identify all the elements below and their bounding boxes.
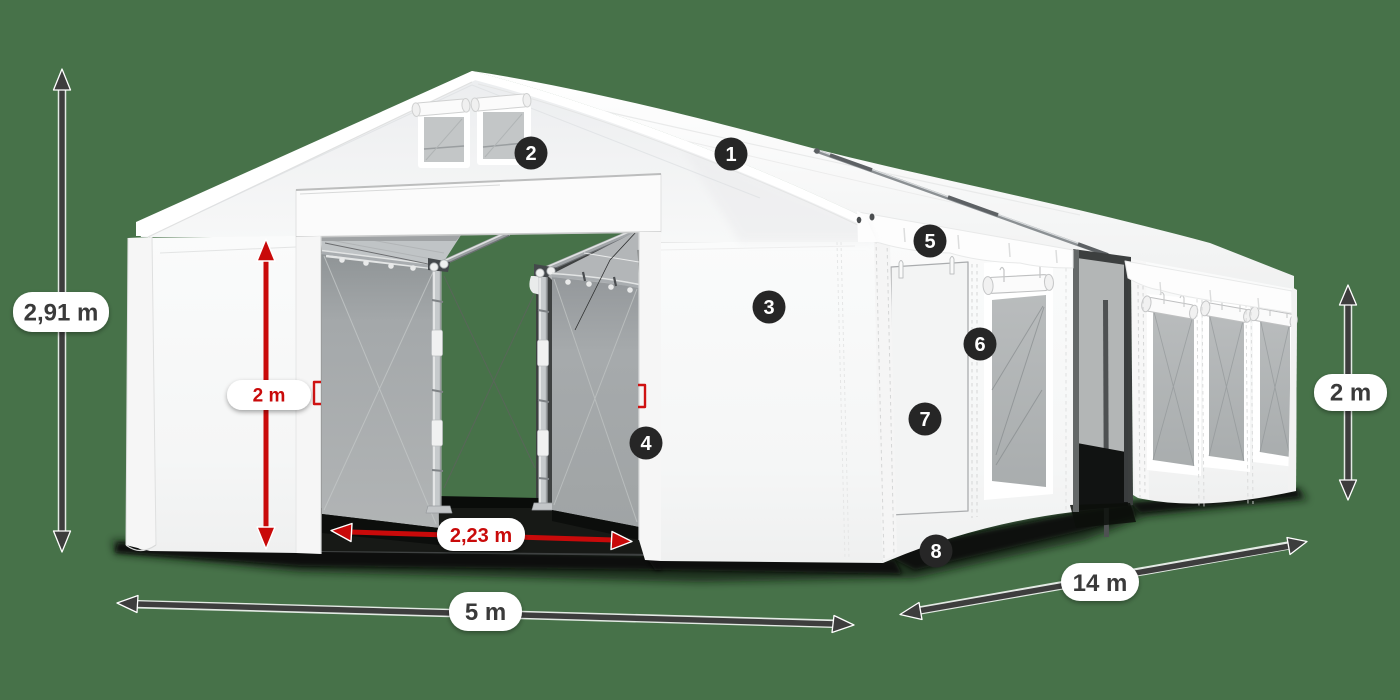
svg-text:8: 8 [930,541,941,563]
svg-text:2: 2 [525,143,536,165]
svg-text:5: 5 [924,231,935,253]
svg-text:2 m: 2 m [1330,380,1371,407]
svg-text:2,91 m: 2,91 m [24,300,99,327]
svg-text:4: 4 [640,433,652,455]
svg-text:14 m: 14 m [1073,570,1128,597]
svg-text:3: 3 [763,297,774,319]
svg-text:2 m: 2 m [253,386,286,407]
svg-text:6: 6 [974,334,985,356]
svg-text:1: 1 [725,144,736,166]
svg-text:2,23 m: 2,23 m [450,525,512,547]
svg-text:5 m: 5 m [465,599,506,626]
svg-text:7: 7 [919,409,930,431]
